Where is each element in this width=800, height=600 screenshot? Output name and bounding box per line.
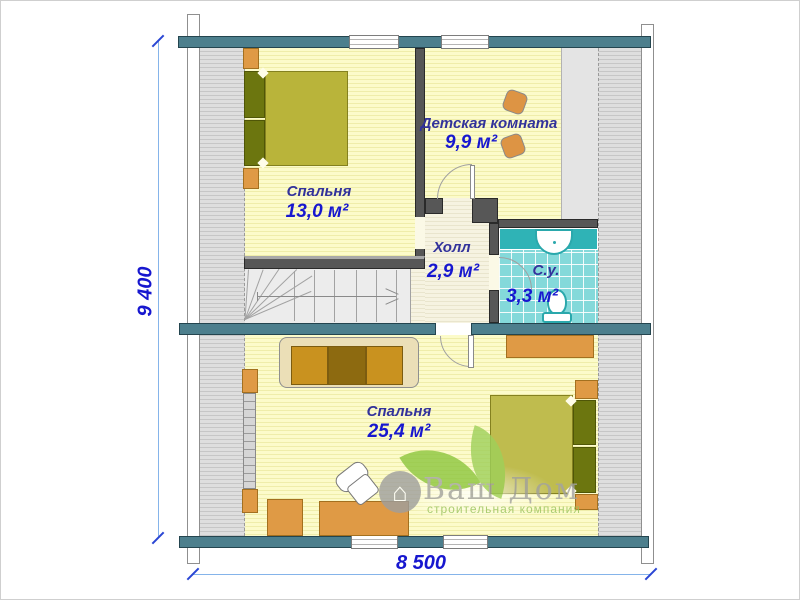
toilet-tank bbox=[542, 312, 572, 323]
wall-cabinet bbox=[242, 489, 258, 513]
kids-room-closet-strip bbox=[561, 48, 599, 219]
outer-wall-band-right bbox=[641, 24, 654, 564]
middle-wall-left bbox=[179, 323, 436, 335]
hall-top-wall bbox=[425, 198, 443, 214]
bed-pillows-lower bbox=[573, 400, 596, 445]
room-label-bedroom-lower: Спальня bbox=[339, 403, 459, 420]
room-area-bedroom-upper: 13,0 м² bbox=[247, 201, 387, 223]
corner-dresser bbox=[267, 499, 303, 536]
nightstand bbox=[575, 380, 598, 399]
window-top-1 bbox=[349, 35, 399, 49]
stair-arrow-start-tick bbox=[257, 292, 258, 301]
nightstand bbox=[243, 48, 259, 69]
hall-corner-wall bbox=[472, 198, 498, 223]
exterior-wall-top bbox=[178, 36, 651, 48]
bed-upper bbox=[265, 71, 348, 166]
bedroom-lower-door-leaf bbox=[468, 335, 474, 368]
wall-cabinet bbox=[242, 369, 258, 393]
bathroom-top-wall bbox=[498, 219, 598, 228]
dimension-line-vertical bbox=[158, 41, 159, 538]
dimension-height-label: 9 400 bbox=[135, 257, 158, 327]
dimension-width-label: 8 500 bbox=[361, 552, 481, 575]
kids-room-door-leaf bbox=[470, 165, 475, 199]
room-area-kids-room: 9,9 м² bbox=[406, 132, 536, 154]
floor-plan-canvas: Спальня 13,0 м² Детская комната 9,9 м² Х… bbox=[0, 0, 800, 600]
sofa bbox=[279, 337, 419, 388]
window-bottom-1 bbox=[351, 535, 398, 549]
exterior-wall-bottom bbox=[179, 536, 649, 548]
window-top-2 bbox=[441, 35, 489, 49]
room-label-kids-room: Детская комната bbox=[414, 115, 564, 132]
room-label-bathroom: С.у. bbox=[506, 262, 586, 279]
window-bottom-2 bbox=[443, 535, 488, 549]
logo-subtitle: строительная компания bbox=[427, 502, 581, 516]
room-area-hall: 2,9 м² bbox=[393, 261, 513, 283]
outer-wall-band-left bbox=[187, 14, 200, 564]
roof-slope-band-right bbox=[598, 48, 642, 536]
room-label-bedroom-upper: Спальня bbox=[249, 183, 389, 200]
bedroom-lower-door-arc bbox=[440, 336, 471, 367]
middle-wall-right bbox=[471, 323, 651, 335]
roof-slope-band-left bbox=[200, 48, 245, 536]
stair-direction-arrow bbox=[258, 296, 396, 297]
sink-drain-dot bbox=[553, 241, 556, 244]
house-icon: ⌂ bbox=[379, 471, 421, 513]
company-logo: ⌂ Ваш Дом строительная компания bbox=[379, 431, 564, 526]
ladder bbox=[243, 393, 256, 489]
shelf-cabinet bbox=[506, 335, 594, 358]
room-area-bathroom: 3,3 м² bbox=[472, 286, 592, 308]
room-label-hall: Холл bbox=[412, 239, 492, 256]
kids-room-door-arc bbox=[437, 164, 472, 199]
